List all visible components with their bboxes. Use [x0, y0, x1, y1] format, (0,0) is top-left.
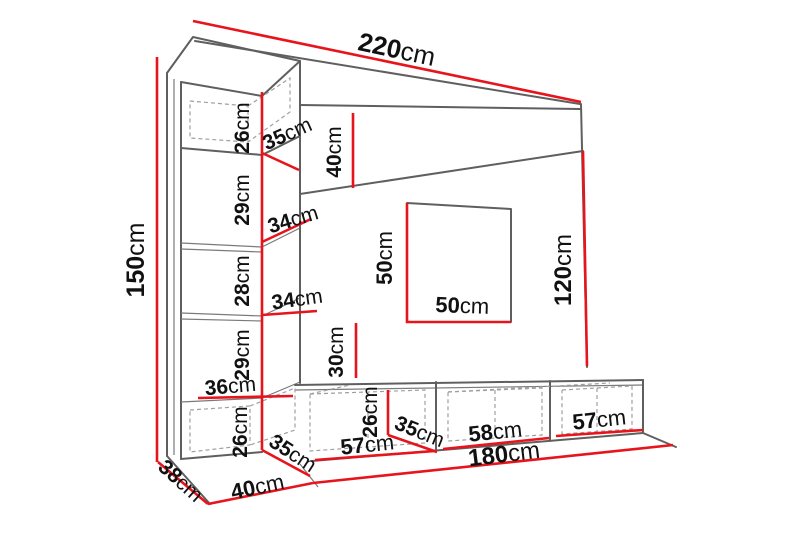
dim-label-opening-height: 50cm: [372, 231, 397, 285]
dim-label-header-height: 40cm: [323, 126, 346, 177]
dim-label-floor-depth: 40cm: [229, 469, 287, 505]
dim-label-shelf-gap-2: 28cm: [231, 255, 254, 306]
dim-label-column-height: 150cm: [122, 222, 150, 297]
dim-label-total-width: 220cm: [356, 26, 439, 72]
wall-unit-drawing: 220cm 150cm 26cm 35cm 40cm 29cm 34cm 28c…: [0, 0, 800, 533]
dim-label-shelf-gap-1: 29cm: [231, 174, 254, 225]
dim-label-shelf-width-3: 36cm: [204, 373, 257, 400]
dim-label-below-opening: 30cm: [325, 326, 348, 377]
dim-label-top-cabinet-depth: 35cm: [259, 113, 315, 155]
dim-label-right-panel-height: 120cm: [550, 234, 577, 306]
dim-line-top-cabinet-depth: [262, 153, 299, 170]
dim-label-opening-width: 50cm: [435, 292, 490, 319]
dimension-diagram: 220cm 150cm 26cm 35cm 40cm 29cm 34cm 28c…: [0, 0, 800, 533]
dim-label-column-side-depth: 38cm: [154, 455, 208, 506]
dim-label-lower-cabinet-height: 26cm: [229, 406, 252, 457]
dim-label-top-cabinet-height: 26cm: [231, 102, 254, 153]
dim-label-shelf-width-1: 34cm: [265, 201, 321, 238]
